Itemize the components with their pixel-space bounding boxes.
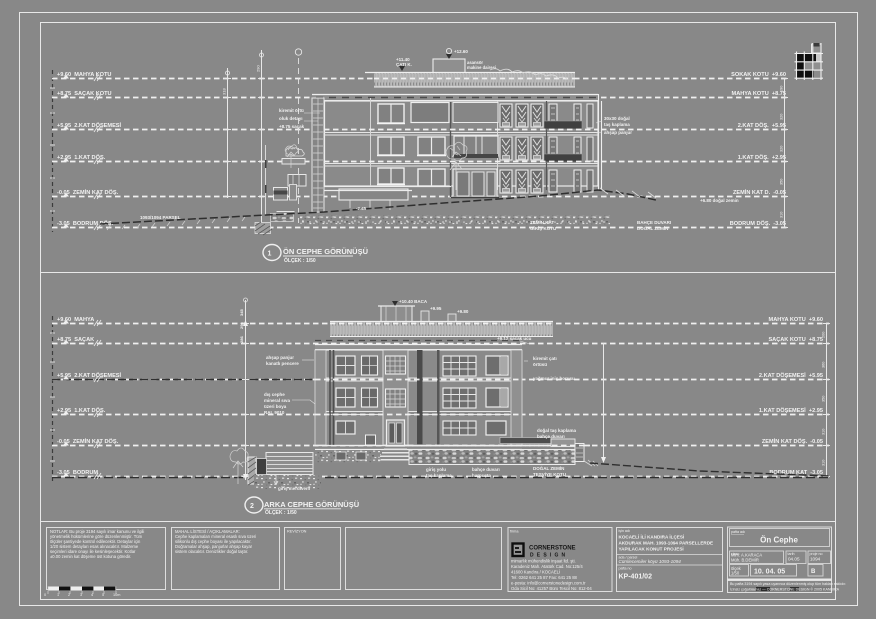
svg-text:310: 310 [822, 429, 826, 435]
svg-text:ÖLÇEK : 1/50: ÖLÇEK : 1/50 [284, 257, 316, 264]
svg-text:ÖLÇEK : 1/50: ÖLÇEK : 1/50 [265, 509, 297, 516]
svg-text:ARKA CEPHE GÖRÜNÜŞÜ: ARKA CEPHE GÖRÜNÜŞÜ [264, 500, 359, 509]
svg-text:Müh. B.DEMİR: Müh. B.DEMİR [731, 558, 759, 563]
svg-text:350: 350 [822, 396, 826, 402]
svg-text:DOĞAL ZEMİN: DOĞAL ZEMİN [533, 464, 564, 471]
svg-text:bahçe duvarı: bahçe duvarı [537, 434, 565, 439]
svg-text:taş kaplama: taş kaplama [604, 122, 630, 127]
svg-text:+6.80 doğal zemin: +6.80 doğal zemin [700, 198, 739, 203]
svg-text:Tel: 0262 641 25 87 Fax: 641 2: Tel: 0262 641 25 87 Fax: 641 25 88 [511, 575, 578, 580]
svg-text:320: 320 [780, 146, 784, 152]
svg-text:GİRİŞ KOTU: GİRİŞ KOTU [530, 225, 556, 231]
svg-text:ahşap panjur: ahşap panjur [604, 130, 632, 135]
svg-text:350: 350 [780, 179, 784, 185]
svg-text:YAPILACAK KONUT PROJESİ: YAPILACAK KONUT PROJESİ [619, 546, 684, 552]
svg-text:KOCAELİ İLİ KANDIRA İLÇESİ: KOCAELİ İLİ KANDIRA İLÇESİ [619, 534, 685, 540]
svg-text:2.KAT DÖŞEMESİ +5.95: 2.KAT DÖŞEMESİ +5.95 [759, 372, 823, 379]
svg-text:2: 2 [68, 593, 70, 597]
svg-text:Karadeniz Mah. Atatürk Cad. No: Karadeniz Mah. Atatürk Cad. No:125/4 [511, 564, 583, 569]
svg-text:B: B [811, 569, 816, 575]
svg-text:+12.60: +12.60 [454, 49, 468, 54]
svg-text:5: 5 [102, 593, 104, 597]
svg-text:Oda Sicil No: 41257 Büro Tesci: Oda Sicil No: 41257 Büro Tescil No: 812-… [511, 586, 592, 591]
svg-text:2: 2 [250, 503, 254, 510]
svg-text:-3.05 BODRUM: -3.05 BODRUM [57, 470, 98, 476]
svg-text:SOKAK KOTU +9.60: SOKAK KOTU +9.60 [731, 72, 786, 78]
svg-text:30x30 doğal: 30x30 doğal [604, 116, 630, 121]
svg-text:proje no: proje no [810, 552, 823, 556]
svg-text:310: 310 [780, 212, 784, 218]
svg-text:4: 4 [91, 593, 93, 597]
svg-text:190: 190 [780, 86, 784, 92]
svg-text:+8.75 SAÇAK: +8.75 SAÇAK [57, 337, 94, 343]
svg-text:MAHYA KOTU +9.60: MAHYA KOTU +9.60 [769, 317, 823, 323]
svg-text:1094: 1094 [810, 557, 821, 562]
svg-text:firma: firma [510, 530, 519, 534]
svg-text:0: 0 [44, 593, 46, 597]
svg-text:İzinsiz çoğaltılamaz — CORNERS: İzinsiz çoğaltılamaz — CORNERSTONE DESIG… [730, 587, 840, 592]
svg-text:MAHYA KOTU +8.75: MAHYA KOTU +8.75 [732, 91, 786, 97]
svg-text:mimarlık mühendislik inşaat lt: mimarlık mühendislik inşaat ltd. şti. [511, 559, 576, 564]
svg-text:giriş yolu: giriş yolu [426, 467, 446, 472]
svg-text:±0.00 zemin kat döşeme üst kot: ±0.00 zemin kat döşeme üst kotuna göredi… [50, 554, 131, 559]
svg-text:sistem olacaktır. Denizlikler: sistem olacaktır. Denizlikler doğal taşt… [175, 549, 248, 554]
svg-text:-2.45: -2.45 [356, 206, 367, 211]
svg-text:KP-401/02: KP-401/02 [619, 574, 653, 581]
svg-text:3: 3 [80, 593, 82, 597]
svg-text:bahçe duvarı: bahçe duvarı [472, 467, 500, 472]
svg-text:üzeri boya: üzeri boya [264, 404, 287, 409]
svg-text:e-posta: info@cornerstonedesig: e-posta: info@cornerstonedesign.com.tr [511, 581, 586, 586]
svg-text:pafta no: pafta no [619, 567, 632, 571]
svg-text:318: 318 [222, 88, 227, 95]
svg-text:kanatlı pencere: kanatlı pencere [266, 361, 299, 366]
svg-text:1: 1 [268, 251, 272, 258]
svg-text:SAÇAK KOTU +8.75: SAÇAK KOTU +8.75 [768, 337, 823, 343]
svg-text:ZEMİN KAT D. -0.05: ZEMİN KAT D. -0.05 [733, 189, 786, 196]
svg-text:ÖN CEPHE GÖRÜNÜŞÜ: ÖN CEPHE GÖRÜNÜŞÜ [283, 247, 368, 256]
svg-text:200: 200 [822, 332, 826, 338]
svg-text:1.KAT DÖŞ. +2.95: 1.KAT DÖŞ. +2.95 [738, 154, 786, 161]
svg-text:ZEMİN KAT: ZEMİN KAT [530, 219, 554, 225]
svg-text:345: 345 [239, 309, 244, 316]
svg-text:Ön Cephe: Ön Cephe [760, 536, 798, 545]
svg-text:1: 1 [57, 593, 59, 597]
svg-text:doğal taş kaplama: doğal taş kaplama [537, 428, 577, 433]
svg-text:RAL 9010: RAL 9010 [264, 410, 285, 415]
svg-text:290: 290 [256, 65, 261, 72]
svg-text:320: 320 [780, 114, 784, 120]
svg-text:10. 04. 05: 10. 04. 05 [754, 569, 785, 576]
svg-text:işin adı: işin adı [619, 529, 630, 533]
svg-text:BAHÇE DUVARI: BAHÇE DUVARI [637, 220, 671, 225]
svg-text:taş kaplama: taş kaplama [426, 473, 452, 478]
svg-text:1.KAT DÖŞEMESİ +2.95: 1.KAT DÖŞEMESİ +2.95 [759, 407, 823, 414]
svg-text:TESVİYE KOTU: TESVİYE KOTU [533, 471, 566, 477]
svg-text:360: 360 [822, 362, 826, 368]
svg-text:2.KAT DÖŞ. +5.95: 2.KAT DÖŞ. +5.95 [738, 122, 786, 129]
svg-text:giriş merdiveni: giriş merdiveni [278, 486, 310, 491]
svg-text:örtüsü: örtüsü [533, 362, 547, 367]
svg-text:CORNERSTONE: CORNERSTONE [529, 546, 576, 552]
svg-text:ÇATI K.: ÇATI K. [396, 62, 412, 67]
svg-text:286: 286 [239, 336, 244, 343]
svg-text:DOĞAL ZEMİN: DOĞAL ZEMİN [637, 224, 668, 231]
svg-text:pafta adı: pafta adı [731, 530, 745, 534]
svg-text:+9.95: +9.95 [430, 306, 442, 311]
svg-text:10m: 10m [113, 593, 120, 597]
svg-text:1093/1094 PARSEL: 1093/1094 PARSEL [140, 215, 181, 220]
svg-text:harpuşta: harpuşta [472, 473, 492, 478]
svg-text:BODRUM DÖŞ. -3.05: BODRUM DÖŞ. -3.05 [730, 220, 786, 227]
svg-text:oluk detayı: oluk detayı [279, 116, 303, 121]
svg-text:Cümlecemiler köyü 1093-1094: Cümlecemiler köyü 1093-1094 [619, 559, 682, 564]
svg-text:REVİZYON: REVİZYON [287, 529, 307, 534]
svg-text:tarih: tarih [788, 552, 795, 556]
svg-text:kiremit çatı: kiremit çatı [533, 356, 557, 361]
svg-text:1/50: 1/50 [731, 571, 740, 576]
svg-text:298: 298 [239, 322, 244, 329]
svg-text:yağmur iniş borusu: yağmur iniş borusu [533, 376, 575, 381]
svg-text:AKDURAK MAH. 1093-1094 PARSELL: AKDURAK MAH. 1093-1094 PARSELLERDE [619, 541, 714, 546]
svg-text:+9.60 MAHYA: +9.60 MAHYA [57, 317, 94, 323]
svg-text:+9.80: +9.80 [457, 309, 469, 314]
svg-text:ZEMİN KAT DÖŞ. -0.05: ZEMİN KAT DÖŞ. -0.05 [762, 438, 823, 445]
svg-text:310: 310 [822, 460, 826, 466]
svg-text:+8.75 saçak: +8.75 saçak [279, 124, 305, 129]
svg-text:kiremit örtü: kiremit örtü [279, 108, 304, 113]
svg-text:+10.40 BACA: +10.40 BACA [399, 299, 428, 304]
svg-text:04.05: 04.05 [788, 557, 800, 562]
svg-text:41600 Kandıra / KOCAELİ: 41600 Kandıra / KOCAELİ [511, 570, 560, 575]
svg-text:Bu pafta 3194 sayılı yasa uyar: Bu pafta 3194 sayılı yasa uyarınca düzen… [730, 582, 846, 586]
svg-text:ahşap panjur: ahşap panjur [266, 355, 294, 360]
svg-text:dış cephe: dış cephe [264, 392, 285, 397]
svg-text:mineral sıva: mineral sıva [264, 398, 291, 403]
